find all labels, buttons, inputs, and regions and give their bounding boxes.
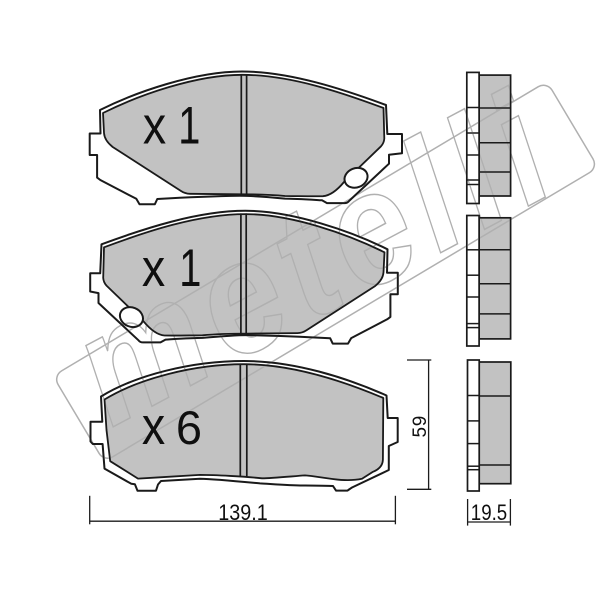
svg-text:19.5: 19.5 — [471, 501, 507, 525]
svg-text:1: 1 — [178, 96, 200, 155]
svg-text:139.1: 139.1 — [218, 501, 268, 525]
svg-text:59: 59 — [410, 415, 431, 438]
svg-text:x: x — [143, 96, 166, 155]
